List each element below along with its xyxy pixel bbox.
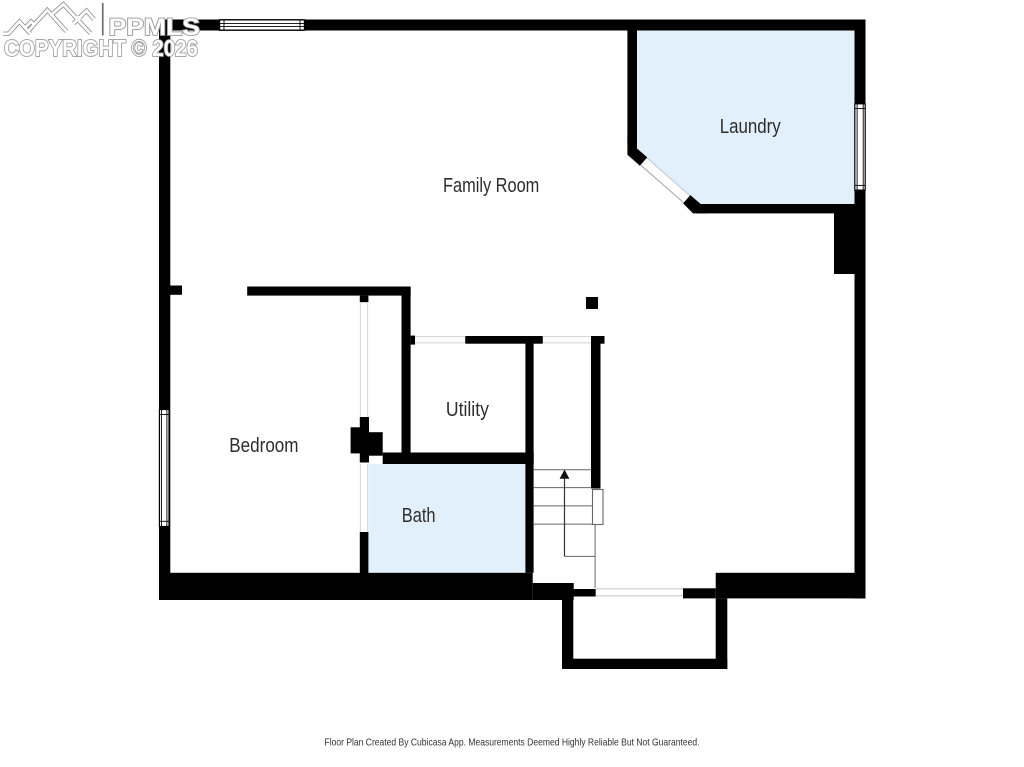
svg-text:Utility: Utility [446, 399, 489, 421]
svg-text:Family Room: Family Room [443, 175, 539, 197]
svg-text:Floor Plan Created By Cubicasa: Floor Plan Created By Cubicasa App. Meas… [325, 737, 700, 749]
svg-text:Bath: Bath [402, 505, 436, 527]
svg-text:Laundry: Laundry [720, 116, 781, 138]
svg-text:Bedroom: Bedroom [229, 435, 298, 457]
svg-text:COPYRIGHT © 2026: COPYRIGHT © 2026 [4, 35, 198, 61]
